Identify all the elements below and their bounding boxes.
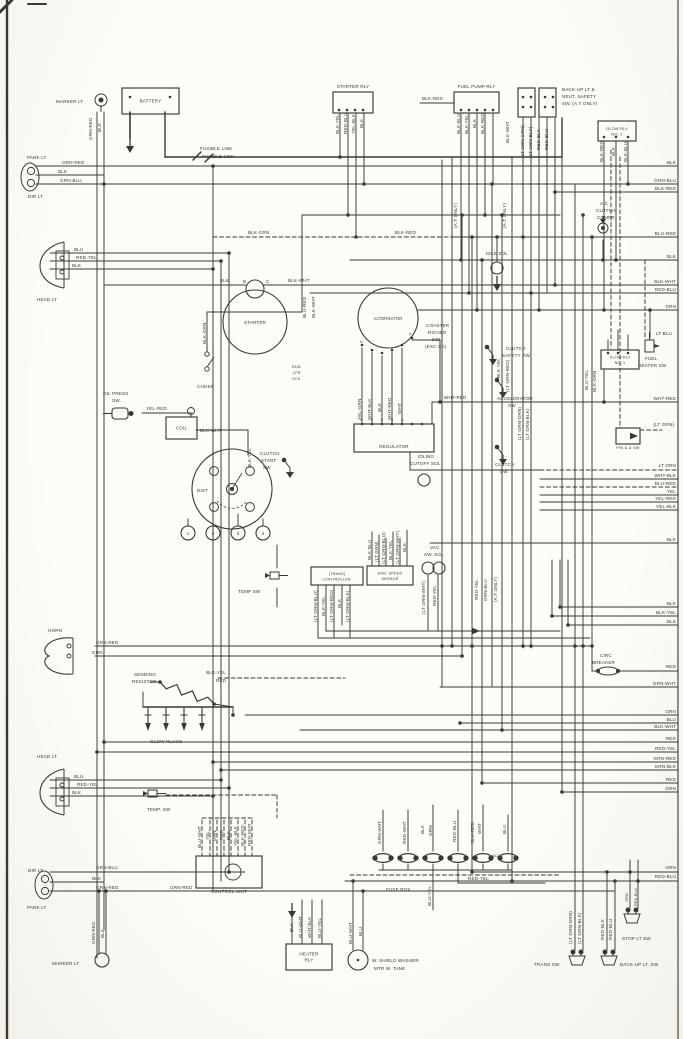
wire-label: RED-BLK bbox=[600, 918, 605, 940]
junction-dot bbox=[605, 870, 609, 874]
wire-label: BLK-YEL bbox=[247, 448, 252, 468]
junction-dot bbox=[614, 258, 618, 262]
junction-dot bbox=[211, 794, 215, 798]
junction-dot bbox=[602, 400, 606, 404]
terminal-dot bbox=[544, 106, 547, 109]
wire-label: LT GRN bbox=[659, 463, 676, 468]
wire-label: (LT GRN-BLK) bbox=[528, 126, 533, 158]
wire-label: (LT GRN-RED) bbox=[505, 359, 510, 392]
circuit-breaker bbox=[616, 669, 619, 672]
wire-label: WHT-BLK bbox=[367, 398, 372, 420]
wire-label: GRN-RED bbox=[96, 885, 119, 890]
terminal-dot bbox=[522, 96, 525, 99]
wire-label: BACK-UP LT & bbox=[562, 87, 595, 92]
wire-label: BLK-GRN bbox=[592, 371, 597, 392]
wire-label: BLK bbox=[611, 146, 616, 156]
park-dir-light-top bbox=[21, 163, 39, 191]
wire-label: RICHER bbox=[428, 330, 447, 335]
wire-label: BLK-BLU bbox=[623, 142, 628, 162]
junction-dot bbox=[470, 870, 474, 874]
wire-label: DIST bbox=[197, 488, 208, 493]
wire-label: RED-BLU bbox=[655, 287, 676, 292]
trans-controller-label: CONTROLLER bbox=[323, 577, 351, 581]
wire-label: RED-BLU bbox=[343, 113, 348, 134]
head-light-upper bbox=[60, 270, 64, 274]
junction-dot bbox=[613, 879, 617, 883]
terminal-dot bbox=[617, 352, 620, 355]
wire-label: GRN-RED bbox=[88, 117, 93, 140]
wire-label: PARK LT bbox=[27, 905, 47, 910]
wire-label: BLU bbox=[74, 247, 83, 252]
starter-solenoid bbox=[246, 280, 264, 298]
wire-label: BLK bbox=[58, 169, 68, 174]
wire bbox=[560, 560, 678, 607]
wire-label: WHT-RED bbox=[444, 395, 467, 400]
fuse-5 bbox=[473, 854, 493, 863]
wire-label: ACCELERATOR bbox=[497, 396, 533, 401]
wire-label: (LT GRN-GRN) bbox=[568, 911, 573, 944]
wire-label: BLU-YEL bbox=[584, 370, 589, 390]
wire-label: BLK-YEL bbox=[656, 610, 676, 615]
wire-label: BLU-RED bbox=[655, 231, 677, 236]
wire-label: FUSIBLE LINK bbox=[202, 154, 235, 159]
head-light-lower bbox=[60, 783, 64, 787]
wire-label: BLK-WHT bbox=[505, 121, 510, 143]
wire-label: RED-BLK bbox=[536, 128, 541, 150]
wire-label: RED-BLU bbox=[544, 129, 549, 150]
wire-label: BLK-YEL bbox=[206, 670, 226, 675]
junction-dot bbox=[219, 778, 223, 782]
wire-label: N bbox=[360, 340, 363, 344]
wire bbox=[196, 430, 248, 455]
wire-label: GRN bbox=[665, 709, 676, 714]
wire-label: BLK bbox=[92, 876, 102, 881]
wire-label: BLU-RED bbox=[655, 481, 677, 486]
junction-dot bbox=[459, 258, 463, 262]
terminal-dot bbox=[338, 109, 341, 112]
junction-dot bbox=[510, 879, 514, 883]
wire-label: HEAD LT bbox=[37, 754, 57, 759]
wire-label: A bbox=[401, 418, 404, 422]
head-light-lower bbox=[40, 769, 69, 815]
vac-solenoid-a bbox=[422, 562, 434, 574]
wire-label: BLK-RED bbox=[599, 141, 604, 162]
wire-label: HEAD LT bbox=[37, 297, 57, 302]
junction-dot bbox=[601, 258, 605, 262]
oil-press-switch bbox=[129, 412, 133, 416]
wire-label: BLK bbox=[100, 928, 105, 938]
junction-dot bbox=[529, 644, 533, 648]
temp-switch-2 bbox=[143, 791, 148, 796]
wire-label: BLU-YEL bbox=[427, 886, 432, 906]
junction-dot bbox=[475, 308, 479, 312]
junction-dot bbox=[351, 879, 355, 883]
wire-label: (A.T ONLY) bbox=[453, 203, 458, 228]
battery-ground bbox=[126, 146, 134, 153]
oil-press-switch bbox=[103, 408, 133, 419]
head-light-lower bbox=[56, 778, 69, 806]
junction-dot bbox=[219, 259, 223, 263]
wire-label: RED-YEL bbox=[468, 876, 489, 881]
wire-label: (LT GRN) bbox=[374, 541, 379, 562]
wire-label: WHT bbox=[397, 403, 402, 414]
wire-label: GRN bbox=[625, 893, 629, 902]
wire-label: FUEL bbox=[645, 356, 658, 361]
junction-dot bbox=[521, 644, 525, 648]
circuit-breaker bbox=[596, 667, 619, 675]
park-dir-light-bottom bbox=[41, 887, 48, 894]
wire-label: RED-YEL bbox=[474, 579, 479, 600]
wire-label: HEATER SW bbox=[638, 363, 667, 368]
wire-label: BLK bbox=[667, 601, 677, 606]
marker-light-top bbox=[95, 94, 107, 112]
wire-label: A bbox=[409, 332, 412, 336]
wire-label: FUSIBLE LINK bbox=[200, 146, 233, 151]
wire bbox=[193, 152, 201, 160]
wire-label: RED bbox=[666, 736, 677, 741]
junction-dot bbox=[211, 267, 215, 271]
wire-label: CUTOFF SOL bbox=[410, 461, 441, 466]
wire-label: BLK-WHT bbox=[654, 279, 676, 284]
heater-relay-label: RLY bbox=[304, 958, 313, 963]
starter-label: STARTER bbox=[244, 320, 267, 325]
wire bbox=[568, 560, 678, 625]
wire-label: SENDING bbox=[134, 672, 156, 677]
ac-clutch-compressor bbox=[602, 227, 605, 230]
stop-light-switch bbox=[624, 908, 640, 923]
wire-label: BLK-WHT bbox=[654, 724, 676, 729]
wire-label: CIRC bbox=[600, 653, 612, 658]
wire-label: RED-YEL bbox=[76, 255, 97, 260]
wire-label: GRN-RED bbox=[654, 756, 677, 761]
junction-dot bbox=[460, 213, 464, 217]
wire-label: (LT GRN-GRN) bbox=[520, 125, 525, 158]
wire-label: BLK bbox=[226, 830, 231, 840]
wire-label: BLK-YEL bbox=[388, 540, 393, 560]
junction-dot bbox=[553, 190, 557, 194]
wire-label: GRN bbox=[665, 786, 676, 791]
wire-label: START bbox=[261, 458, 276, 463]
wire-label: GRN-WHT bbox=[377, 821, 382, 844]
fuse-4 bbox=[464, 856, 468, 860]
wiring-diagram: BATTERYSTARTER RLYFUEL PUMP RLYGLOW RLYN… bbox=[0, 0, 683, 1039]
wire-label: BLK-GRN bbox=[202, 323, 207, 344]
control-unit-label: CONTROL UNIT bbox=[211, 889, 247, 894]
wire-label: CLUTCH bbox=[495, 462, 515, 467]
wire-label: BLK-YEL bbox=[464, 114, 469, 134]
spark-plug-1-label: 1 bbox=[187, 531, 190, 536]
wire-label: HORN bbox=[48, 628, 62, 633]
wire-label: BLK-YEL bbox=[496, 358, 501, 378]
idle-solenoid bbox=[491, 262, 503, 274]
wire-label: (A.T ONLY) bbox=[493, 577, 498, 602]
wire bbox=[412, 340, 440, 402]
wire-label: RED-BLU bbox=[655, 874, 676, 879]
battery-label: BATTERY bbox=[140, 99, 162, 104]
head-light-upper bbox=[40, 242, 64, 288]
terminal-dot bbox=[522, 106, 525, 109]
wire-label: BLK bbox=[72, 790, 82, 795]
wire-label: BACK-UP LT. SW bbox=[620, 962, 659, 967]
circuit-breaker bbox=[596, 669, 599, 672]
terminal-dot bbox=[627, 352, 630, 355]
backup-switch-a-box bbox=[518, 88, 535, 117]
backup-switch-b-box bbox=[539, 88, 556, 117]
terminal-dot bbox=[544, 96, 547, 99]
junction-dot bbox=[338, 155, 342, 159]
wire-label: GLOW PLUGS bbox=[150, 739, 182, 744]
junction-dot bbox=[102, 740, 106, 744]
wire-label: BLK bbox=[72, 263, 82, 268]
wire-label: RUN bbox=[292, 365, 301, 369]
wire-label: RED-WHT bbox=[247, 823, 252, 846]
head-light-upper bbox=[60, 256, 64, 260]
junction-dot bbox=[553, 283, 557, 287]
wire-label: BLK-WHT bbox=[200, 428, 222, 433]
junction-dot bbox=[566, 623, 570, 627]
wire-label: BLK-RED bbox=[480, 113, 485, 134]
marker-light-bottom bbox=[95, 953, 109, 967]
terminal-dot bbox=[129, 96, 132, 99]
wire-label: BLK bbox=[667, 160, 677, 165]
wire-label: SW. bbox=[112, 398, 121, 403]
junction-dot bbox=[219, 768, 223, 772]
wire-label: YEL bbox=[205, 831, 210, 840]
control-unit-symbol bbox=[221, 864, 245, 880]
clutch-start-switch bbox=[284, 460, 290, 468]
wire-label: BLK-RED bbox=[655, 186, 676, 191]
fuse-3 bbox=[423, 856, 427, 860]
wire-label: YEL-BLK bbox=[656, 504, 677, 509]
wire-label: LT BLU bbox=[656, 331, 672, 336]
wire-label: (EXC CA) bbox=[425, 344, 447, 349]
junction-dot bbox=[158, 680, 162, 684]
trans-switch bbox=[569, 950, 585, 965]
marker-light-top bbox=[99, 98, 103, 102]
fuse-3 bbox=[423, 854, 443, 863]
park-dir-light-top bbox=[27, 167, 34, 174]
terminal-dot bbox=[362, 109, 365, 112]
wire-label: BLK bbox=[472, 118, 477, 128]
fuse-1 bbox=[373, 856, 377, 860]
wire-label: WHT-RED bbox=[654, 396, 677, 401]
backup-light-switch bbox=[601, 956, 617, 965]
glow-relay-2-label: NO. 2 bbox=[611, 131, 623, 136]
wire-label: CLUTCH bbox=[260, 451, 280, 456]
wire bbox=[160, 682, 214, 704]
wire-label: CLUTCH bbox=[596, 208, 616, 213]
wire-label: BLK bbox=[337, 598, 342, 608]
wire-label: FUSE BOX bbox=[386, 887, 410, 892]
distributor-cap bbox=[246, 503, 255, 512]
wire-label: GRN-BLU bbox=[60, 178, 82, 183]
wire-label: TEMP. SW bbox=[147, 807, 171, 812]
terminal-dot bbox=[460, 109, 463, 112]
trans-switch bbox=[571, 950, 575, 954]
spark-plug-2-label: 2 bbox=[212, 531, 215, 536]
temp-switch-1 bbox=[270, 572, 279, 579]
idling-cutoff-solenoid bbox=[418, 474, 430, 486]
fuse-2 bbox=[398, 854, 418, 863]
wire-label: BLK-RED bbox=[240, 825, 245, 846]
wire-label: BLK-YEL bbox=[321, 596, 326, 616]
glow-plugs bbox=[181, 723, 187, 731]
wire-label: BLK bbox=[402, 542, 407, 552]
distributor-cap bbox=[210, 467, 255, 512]
terminal-dot bbox=[607, 352, 610, 355]
junction-dot bbox=[227, 786, 231, 790]
wire-label: B bbox=[243, 279, 246, 284]
terminal-dot bbox=[484, 109, 487, 112]
junction-dot bbox=[467, 291, 471, 295]
junction-dot bbox=[211, 760, 215, 764]
temp-switch-1 bbox=[265, 572, 288, 579]
junction-dot bbox=[628, 870, 632, 874]
stop-light-switch bbox=[634, 908, 638, 912]
fuse-6 bbox=[514, 856, 518, 860]
circuit-breaker bbox=[598, 667, 618, 675]
wire-label: (LT GRN-BLU) bbox=[381, 532, 386, 564]
wire-label: (LT GRN-BLK) bbox=[577, 912, 582, 944]
condenser bbox=[188, 408, 195, 418]
wire-label: CHOKE bbox=[197, 384, 214, 389]
head-light-lower bbox=[40, 769, 64, 815]
wire-label: BLK-WHT bbox=[311, 296, 316, 318]
wire bbox=[552, 560, 678, 616]
trans-switch bbox=[579, 950, 583, 954]
wire-label: VAC bbox=[430, 545, 440, 550]
wire-label: MARKER LT bbox=[56, 99, 83, 104]
backup-light-switch bbox=[601, 950, 617, 965]
pn-d-arrow bbox=[630, 433, 638, 440]
junction-dot bbox=[495, 235, 499, 239]
wire-label: YEL-GRN bbox=[357, 399, 362, 420]
wire-label: RED-BLU bbox=[452, 821, 457, 842]
wire-label: RED bbox=[666, 664, 677, 669]
junction-dot bbox=[450, 644, 454, 648]
wire-label: BLK bbox=[667, 537, 677, 542]
junction-dot bbox=[490, 182, 494, 186]
fuse-1 bbox=[389, 856, 393, 860]
wire-label: WHT-RED bbox=[387, 397, 392, 420]
junction-dot bbox=[460, 654, 464, 658]
wire-label: SW bbox=[508, 403, 516, 408]
wire-label: SAFETY SW bbox=[502, 353, 530, 358]
starter-relay-label: STARTER RLY bbox=[337, 84, 370, 89]
junction-dot bbox=[602, 308, 606, 312]
wire-label: BLU bbox=[74, 774, 83, 779]
clutch-start-switch bbox=[286, 472, 294, 478]
wire-label: GRN-RED bbox=[91, 921, 96, 944]
wire-label: BLK-BLU bbox=[367, 540, 372, 560]
distributor-cap bbox=[210, 503, 219, 512]
wire-label: BLK bbox=[420, 824, 425, 834]
wire-label: F bbox=[371, 418, 373, 422]
wire-label: YEL-BLK bbox=[233, 825, 238, 846]
wire-label: ACC bbox=[492, 853, 501, 858]
wire-label: A.C bbox=[600, 201, 609, 206]
wire-label: (LT GRN-BLK) bbox=[525, 408, 530, 440]
wire-label: N bbox=[360, 418, 363, 422]
heater-ground bbox=[288, 911, 296, 918]
terminal-dot bbox=[552, 106, 555, 109]
wire-label: GRN bbox=[665, 304, 676, 309]
wire-label: BLK-BLU bbox=[456, 114, 461, 134]
wire-label: BLK bbox=[359, 118, 364, 128]
terminal-dot bbox=[492, 109, 495, 112]
wire-label: RED bbox=[666, 777, 677, 782]
park-dir-light-top bbox=[27, 179, 34, 186]
wire-label: YEL-RED bbox=[655, 496, 676, 501]
wire-label: BLK bbox=[220, 278, 230, 283]
wire-label: CLUTCH bbox=[506, 346, 526, 351]
horn bbox=[67, 654, 71, 658]
junction-dot bbox=[458, 721, 462, 725]
junction-dot bbox=[521, 235, 525, 239]
wire-label: MARKER LT bbox=[52, 961, 79, 966]
wire-label: RED-WHT bbox=[402, 821, 407, 844]
wire-label: GRN-RED bbox=[62, 160, 85, 165]
junction-dot bbox=[440, 644, 444, 648]
horn bbox=[67, 644, 71, 648]
heater-relay-label: HEATER bbox=[299, 952, 319, 957]
flow-arrow bbox=[472, 628, 480, 635]
fuel-heater-switch bbox=[645, 340, 654, 352]
junction-dot bbox=[500, 728, 504, 732]
terminal-dot bbox=[603, 136, 606, 139]
wire-label: BLK-WHT bbox=[288, 278, 310, 283]
junction-dot bbox=[438, 400, 442, 404]
terminal-dot bbox=[371, 349, 374, 352]
wire-label: BLK-GRN bbox=[248, 230, 269, 235]
distributor-cap bbox=[217, 501, 247, 508]
terminal-dot bbox=[169, 96, 172, 99]
junction-dot bbox=[346, 213, 350, 217]
wire-label: GRN-RED bbox=[96, 640, 119, 645]
idle-sol-ground bbox=[493, 276, 501, 291]
wire-label: GRN bbox=[92, 650, 103, 655]
wire-label: (LT GRN-WHT) bbox=[395, 530, 400, 564]
wire-label: IDLE SOL bbox=[486, 251, 508, 256]
wire-label: BLU-WHT bbox=[348, 922, 353, 944]
wire-label: (LT GRN-WHT) bbox=[421, 580, 426, 614]
junction-dot bbox=[550, 614, 554, 618]
junction-dot bbox=[529, 291, 533, 295]
trans-switch bbox=[569, 956, 585, 965]
terminal-dot bbox=[361, 344, 364, 347]
junction-dot bbox=[480, 781, 484, 785]
junction-dot bbox=[354, 235, 358, 239]
junction-dot bbox=[537, 308, 541, 312]
wire-label: VCS bbox=[292, 377, 301, 381]
wire-label: TRANS SW bbox=[534, 962, 560, 967]
wire-label: BLU-YEL bbox=[317, 918, 322, 938]
head-light-upper bbox=[40, 242, 69, 288]
oil-press-switch bbox=[112, 408, 128, 419]
wire-label: C bbox=[266, 279, 270, 284]
wire-label: BLK bbox=[97, 122, 102, 132]
wire-label: BLU-WHT bbox=[298, 916, 303, 938]
wire-label: SW. (A.T ONLY) bbox=[562, 101, 598, 106]
fuse-2 bbox=[414, 856, 418, 860]
wire-label: BREAKER bbox=[592, 660, 616, 665]
wire-label: SW bbox=[500, 469, 508, 474]
wire-label: BLU bbox=[667, 717, 676, 722]
wiring-diagram-page: BATTERYSTARTER RLYFUEL PUMP RLYGLOW RLYN… bbox=[0, 0, 683, 1039]
wire-label: BLU-RED bbox=[302, 296, 307, 318]
wire-label: NEUT. SAFETY bbox=[562, 94, 596, 99]
fuse-1 bbox=[373, 854, 393, 863]
